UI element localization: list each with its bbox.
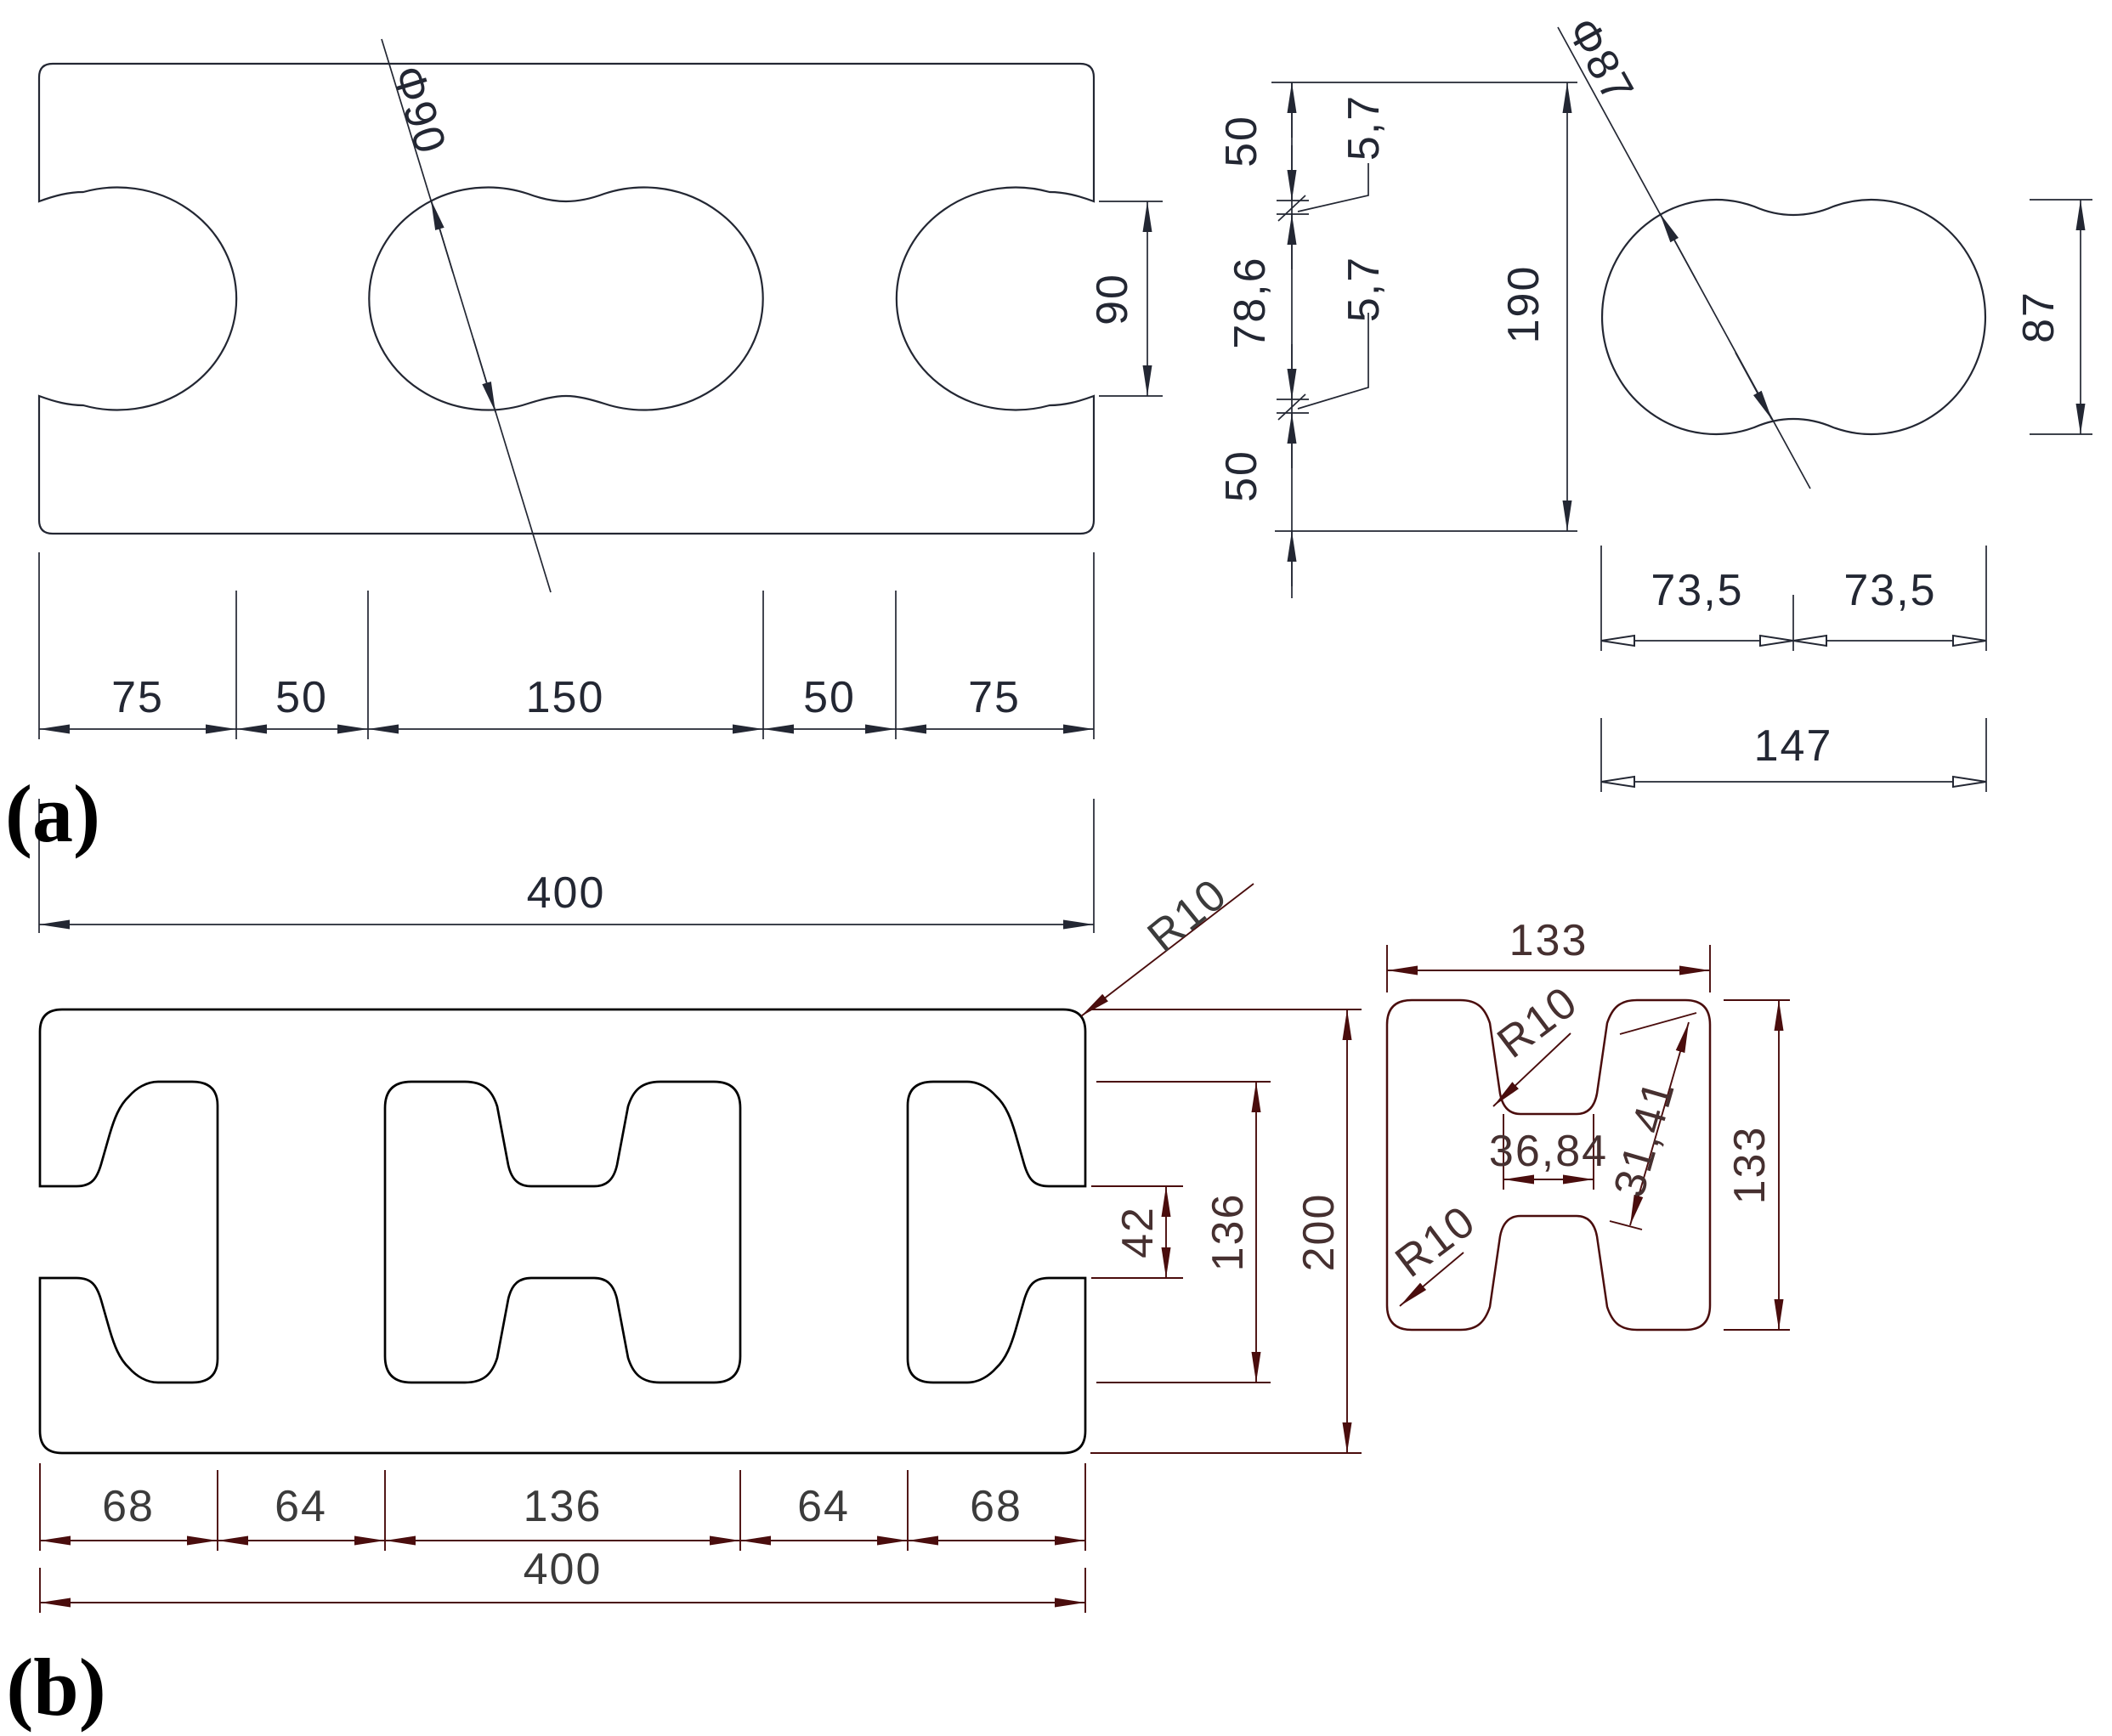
dim-b-chain: 68 64 136 64 68: [40, 1463, 1085, 1551]
dim-b-r10-label: R10: [1139, 869, 1237, 962]
vchain-57-bottom-label: 5,7: [1339, 256, 1389, 322]
dim-a-190-label: 190: [1499, 265, 1549, 344]
dim-b-400: 400: [40, 1545, 1085, 1613]
dim-b-42: 42: [1091, 1186, 1183, 1278]
dim-b-42-label: 42: [1113, 1206, 1163, 1258]
dim-a-150-label: 150: [526, 673, 605, 722]
dim-b-64l-label: 64: [275, 1482, 327, 1531]
block-a-center-hole: [369, 187, 762, 410]
vchain-57-top-label: 5,7: [1339, 94, 1389, 161]
dim-b-136-label: 136: [524, 1482, 603, 1531]
block-b-outline: [40, 1009, 1085, 1453]
dim-b-68r-label: 68: [970, 1482, 1022, 1531]
block-a-outline: [39, 64, 1094, 534]
detail-a-peanut-outline: [1602, 200, 1985, 434]
dim-b-slant: 31,41: [1605, 1013, 1696, 1230]
dim-a-phi90: Φ90: [382, 39, 551, 592]
panel-a: Φ90 90 75 50 150 50 75 400: [5, 9, 2092, 933]
dim-a-phi87: Φ87: [1557, 9, 1810, 489]
phi90-label: Φ90: [382, 60, 456, 161]
dim-a-735r-label: 73,5: [1843, 566, 1936, 615]
dim-b-133-top: 133: [1387, 916, 1710, 992]
dim-b-133-top-label: 133: [1509, 916, 1588, 965]
dim-b-200-label: 200: [1294, 1193, 1344, 1272]
dim-b-136v-label: 136: [1203, 1193, 1253, 1272]
cad-drawing: Φ90 90 75 50 150 50 75 400: [0, 0, 2112, 1736]
dim-b-133-right: 133: [1724, 1000, 1790, 1330]
dim-b-133-right-label: 133: [1725, 1126, 1775, 1205]
dim-b-slant-label: 31,41: [1605, 1074, 1685, 1202]
dim-a-87: 87: [2014, 200, 2092, 434]
dim-a-50r-label: 50: [803, 673, 856, 722]
dim-a-400-label: 400: [527, 868, 606, 918]
phi87-arrow-bottom: [1735, 353, 1772, 420]
dim-a-735l-label: 73,5: [1651, 566, 1743, 615]
vchain-50-bottom-label: 50: [1217, 450, 1266, 502]
panel-b: R10 68 64 136 64 68 400 42: [6, 869, 1790, 1733]
dim-a-75l-label: 75: [111, 673, 164, 722]
dim-a-735: 73,5 73,5: [1601, 546, 1986, 651]
dim-a-75r-label: 75: [968, 673, 1021, 722]
dim-b-neck: 36,84: [1489, 1114, 1608, 1190]
dim-b-r10-bottom-label: R10: [1386, 1196, 1485, 1287]
vchain-50-top-label: 50: [1217, 115, 1266, 167]
dim-a-147-label: 147: [1754, 721, 1833, 771]
dim-b-400-label: 400: [524, 1545, 603, 1594]
dim-b-68l-label: 68: [102, 1482, 155, 1531]
dim-b-r10-top-label: R10: [1488, 977, 1587, 1068]
dim-a-50l-label: 50: [275, 673, 328, 722]
dim-a-90: 90: [1088, 201, 1163, 396]
phi90-arrow-bottom: [473, 339, 495, 412]
detail-b-h: 133 133 R10 36,84 31,41: [1386, 916, 1790, 1330]
dim-a-87-label: 87: [2014, 291, 2064, 343]
dim-a-400: 400: [39, 799, 1094, 933]
vchain-leader-57-top: [1298, 163, 1368, 212]
phi90-arrow-top: [431, 200, 453, 273]
detail-a-peanut: Φ87 87 73,5 73,5 147: [1557, 9, 2092, 792]
vchain-leader-57-bottom: [1298, 313, 1368, 409]
dim-b-r10-top: R10: [1488, 977, 1587, 1106]
dim-b-r10: R10: [1081, 869, 1254, 1016]
dim-b-neck-label: 36,84: [1489, 1127, 1608, 1176]
panel-a-label: (a): [5, 768, 100, 859]
dim-a-147: 147: [1601, 718, 1986, 792]
dim-a-chain: 75 50 150 50 75: [39, 552, 1094, 739]
dim-b-r10-bottom: R10: [1386, 1196, 1485, 1306]
panel-b-label: (b): [6, 1642, 105, 1733]
phi87-label: Φ87: [1557, 9, 1644, 111]
block-b-center-hole: [385, 1082, 740, 1383]
vchain-786-label: 78,6: [1226, 256, 1275, 348]
figure-canvas: Φ90 90 75 50 150 50 75 400: [0, 0, 2112, 1736]
dim-a-90-label: 90: [1088, 273, 1137, 325]
dim-a-heights: 50 5,7 78,6 5,7 50 190: [1217, 82, 1577, 598]
phi87-arrow-top: [1660, 213, 1696, 280]
dim-b-64r-label: 64: [797, 1482, 850, 1531]
